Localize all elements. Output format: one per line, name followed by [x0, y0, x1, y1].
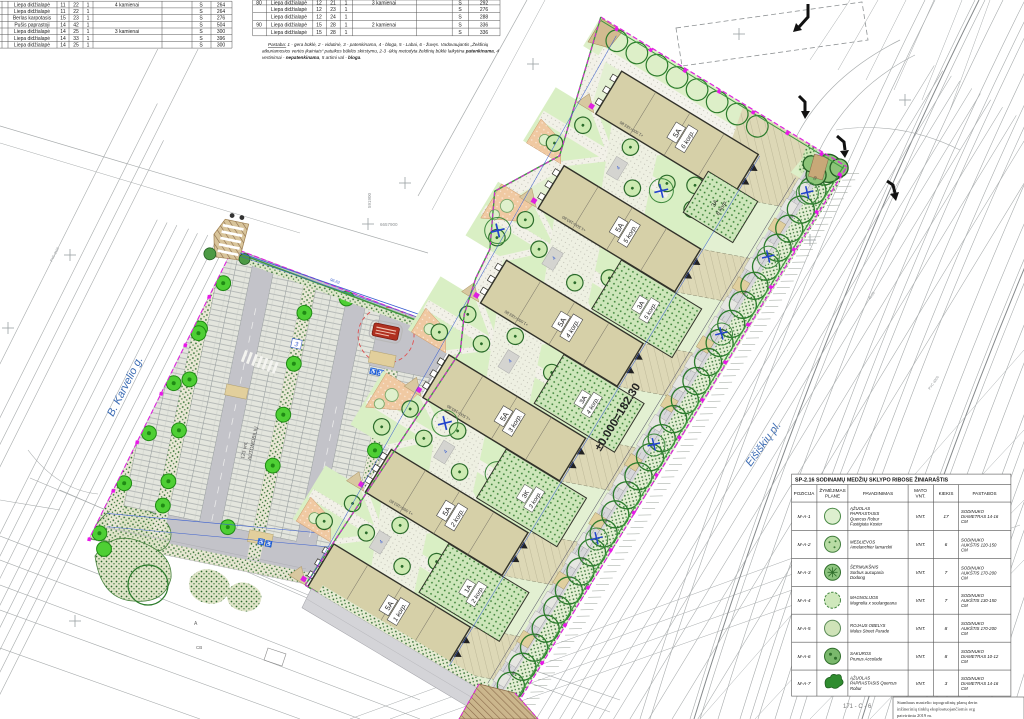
svg-text:1: 1: [345, 1, 348, 7]
svg-text:264: 264: [217, 9, 226, 15]
svg-text:1: 1: [87, 36, 90, 42]
svg-text:Liepa didžialapė: Liepa didžialapė: [14, 43, 50, 49]
svg-text:POZICIJA: POZICIJA: [794, 491, 816, 496]
svg-text:Liepa didžialapė: Liepa didžialapė: [14, 9, 50, 15]
svg-text:300: 300: [217, 43, 226, 49]
svg-text:ŽYMĖJIMAS: ŽYMĖJIMAS: [819, 486, 845, 493]
svg-text:CM: CM: [961, 547, 968, 552]
svg-text:7: 7: [945, 598, 948, 604]
svg-text:14: 14: [60, 36, 66, 42]
svg-text:Liepa didžialapė: Liepa didžialapė: [14, 36, 50, 42]
svg-text:VNT.: VNT.: [915, 626, 925, 631]
svg-text:Pastaba: 1 - gera būklė, 2 - v: Pastaba: 1 - gera būklė, 2 - vidutinė, 3…: [268, 40, 489, 47]
svg-text:90: 90: [256, 22, 262, 28]
svg-text:KIEKIS: KIEKIS: [939, 491, 954, 496]
svg-text:Magnolia x soulangeana: Magnolia x soulangeana: [850, 601, 897, 606]
svg-text:336: 336: [480, 22, 489, 28]
svg-text:25: 25: [73, 29, 79, 35]
svg-text:21: 21: [330, 1, 336, 7]
svg-text:Stambaus mastelio topografinių: Stambaus mastelio topografinių planų der…: [897, 700, 978, 705]
svg-text:CM: CM: [961, 603, 968, 608]
svg-text:1: 1: [345, 22, 348, 28]
svg-text:1: 1: [87, 9, 90, 15]
svg-text:28: 28: [330, 22, 336, 28]
svg-text:CM: CM: [961, 686, 968, 691]
svg-text:171 - C - 6: 171 - C - 6: [843, 704, 872, 710]
svg-text:288: 288: [480, 15, 489, 21]
svg-text:336: 336: [480, 30, 489, 36]
svg-text:M-A-6: M-A-6: [797, 654, 810, 660]
svg-text:15: 15: [316, 30, 322, 36]
svg-text:M-A-2: M-A-2: [797, 542, 810, 548]
svg-text:1: 1: [345, 15, 348, 21]
svg-text:CB: CB: [196, 645, 202, 650]
svg-text:Amelanchier lamarckii: Amelanchier lamarckii: [849, 545, 893, 550]
svg-text:4 kamienai: 4 kamienai: [115, 2, 139, 8]
svg-text:CM: CM: [961, 631, 968, 636]
svg-text:276: 276: [480, 7, 489, 13]
svg-text:12: 12: [316, 15, 322, 21]
svg-text:Liepa didžialapė: Liepa didžialapė: [14, 2, 50, 8]
svg-text:Robur: Robur: [850, 686, 862, 691]
svg-text:504: 504: [217, 22, 226, 28]
svg-text:1: 1: [87, 16, 90, 22]
svg-text:VNT.: VNT.: [915, 542, 925, 547]
svg-text:292: 292: [480, 1, 489, 7]
svg-text:396: 396: [217, 36, 226, 42]
svg-text:14: 14: [60, 29, 66, 35]
svg-text:Dodong: Dodong: [850, 575, 866, 580]
svg-text:7: 7: [945, 570, 948, 576]
svg-text:2 kamienai: 2 kamienai: [372, 22, 396, 28]
svg-text:3 kamienai: 3 kamienai: [115, 29, 139, 35]
svg-text:patvirtinta 2019 m.: patvirtinta 2019 m.: [897, 713, 932, 718]
svg-text:CM: CM: [961, 575, 968, 580]
svg-text:VNT.: VNT.: [915, 681, 925, 686]
svg-text:M-A-7: M-A-7: [797, 681, 810, 687]
svg-text:Liepa didžialapė: Liepa didžialapė: [271, 22, 307, 28]
svg-text:VNT.: VNT.: [916, 494, 926, 499]
svg-text:Liepa didžialapė: Liepa didžialapė: [14, 29, 50, 35]
svg-text:300: 300: [217, 29, 226, 35]
svg-text:Pušis paprastoji: Pušis paprastoji: [14, 22, 49, 28]
svg-text:15: 15: [60, 16, 66, 22]
svg-text:Liepa didžialapė: Liepa didžialapė: [271, 15, 307, 21]
svg-text:3 kamienai: 3 kamienai: [372, 1, 396, 7]
svg-text:1: 1: [87, 22, 90, 28]
svg-text:591900: 591900: [367, 192, 372, 208]
svg-text:M-A-4: M-A-4: [797, 598, 810, 604]
svg-text:1: 1: [345, 7, 348, 13]
svg-text:28: 28: [330, 30, 336, 36]
svg-text:6: 6: [945, 542, 948, 548]
svg-text:Liepa didžialapė: Liepa didžialapė: [271, 7, 307, 13]
svg-text:264: 264: [217, 2, 226, 8]
svg-text:1: 1: [345, 30, 348, 36]
svg-text:Liepa didžialapė: Liepa didžialapė: [271, 30, 307, 36]
svg-text:PASTABOS: PASTABOS: [972, 491, 996, 496]
svg-text:Berlas karpotasis: Berlas karpotasis: [13, 16, 52, 22]
svg-text:Fastigiata Koster: Fastigiata Koster: [850, 522, 883, 527]
svg-text:25: 25: [73, 43, 79, 49]
svg-text:17: 17: [943, 514, 949, 520]
svg-text:12: 12: [316, 7, 322, 13]
svg-text:33: 33: [73, 36, 79, 42]
svg-text:23: 23: [330, 7, 336, 13]
svg-text:11: 11: [60, 9, 65, 15]
svg-text:PLANE: PLANE: [825, 494, 840, 499]
svg-text:22: 22: [73, 9, 79, 15]
svg-text:1: 1: [87, 2, 90, 8]
svg-text:Malus Street Parade: Malus Street Parade: [850, 628, 890, 633]
svg-text:14: 14: [60, 43, 66, 49]
svg-text:VNT.: VNT.: [915, 514, 925, 519]
svg-text:80: 80: [256, 1, 262, 7]
svg-text:MAGNOLIJOS: MAGNOLIJOS: [850, 595, 878, 600]
svg-text:atkuriamosios vertės įkainiais: atkuriamosios vertės įkainiais“ patuikos…: [262, 49, 499, 54]
svg-text:VNT.: VNT.: [915, 654, 925, 659]
svg-text:M-A-1: M-A-1: [797, 514, 810, 520]
svg-text:1: 1: [87, 43, 90, 49]
svg-text:3: 3: [945, 681, 948, 687]
svg-text:6657900: 6657900: [380, 222, 398, 227]
svg-text:CM: CM: [961, 519, 968, 524]
svg-text:22: 22: [73, 2, 79, 8]
svg-text:Liepa didžialapė: Liepa didžialapė: [271, 1, 307, 7]
svg-text:15: 15: [316, 22, 322, 28]
svg-text:12: 12: [316, 1, 322, 7]
svg-text:vertinimai - nepatenkinama, 5: vertinimai - nepatenkinama, 5 artimi val…: [262, 55, 362, 60]
svg-text:SP-2.16 SODINAMŲ MEDŽIŲ SKLYPO: SP-2.16 SODINAMŲ MEDŽIŲ SKLYPO RIBOSE ŽI…: [795, 476, 949, 484]
svg-text:CM: CM: [961, 659, 968, 664]
svg-text:VNT.: VNT.: [915, 570, 925, 575]
svg-text:MATO: MATO: [914, 488, 927, 493]
svg-text:42: 42: [73, 22, 79, 28]
svg-text:Prunus Accolade: Prunus Accolade: [850, 656, 883, 661]
svg-text:M-A-5: M-A-5: [797, 626, 810, 632]
svg-text:PAPRASTASIS: PAPRASTASIS: [850, 511, 879, 516]
svg-text:11: 11: [60, 2, 65, 8]
svg-text:24: 24: [330, 15, 336, 21]
svg-text:PAVADINIMAS: PAVADINIMAS: [863, 491, 893, 496]
svg-text:8: 8: [945, 654, 948, 660]
svg-text:M-A-3: M-A-3: [797, 570, 810, 576]
svg-text:14: 14: [60, 22, 66, 28]
svg-text:8: 8: [945, 626, 948, 632]
svg-text:1: 1: [87, 29, 90, 35]
svg-text:VNT.: VNT.: [915, 598, 925, 603]
svg-text:23: 23: [73, 16, 79, 22]
svg-text:276: 276: [217, 16, 226, 22]
svg-text:inžinerinių tinklų eksploatuoj: inžinerinių tinklų eksploatuojančiomis o…: [897, 707, 976, 712]
